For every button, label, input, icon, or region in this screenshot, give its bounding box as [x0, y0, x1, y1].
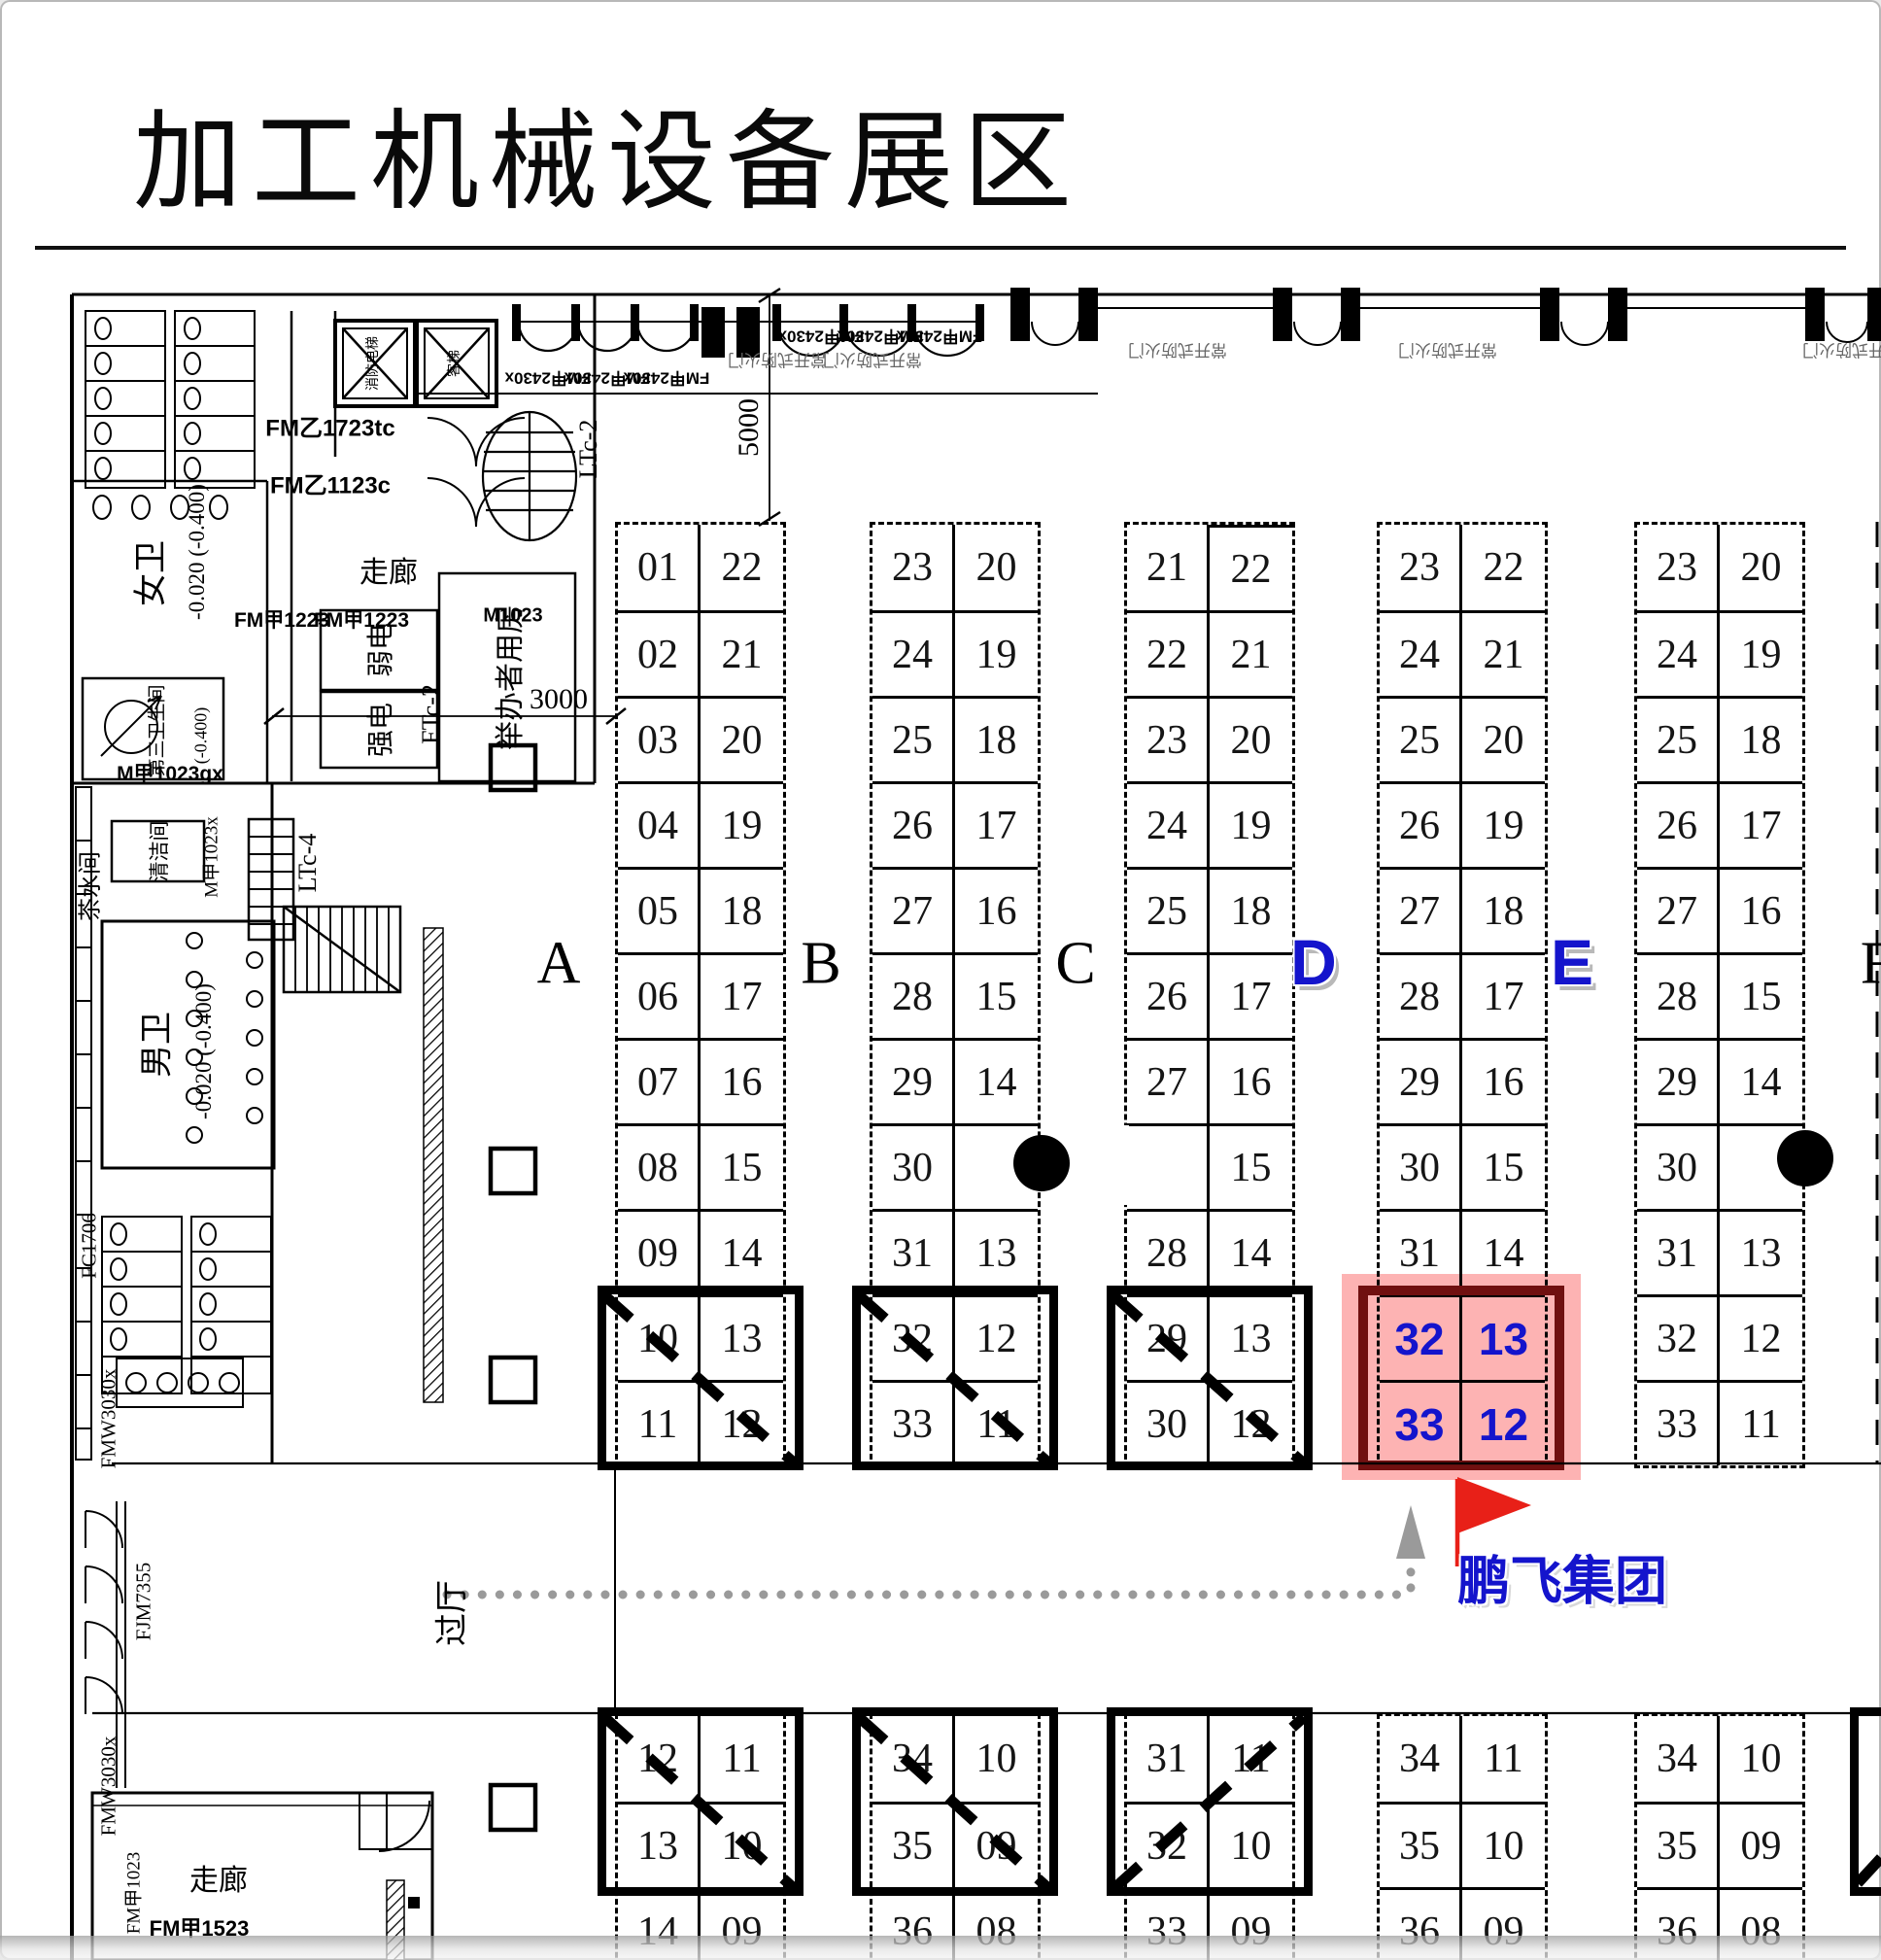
room-label-tea: 茶水间 [71, 851, 105, 921]
booth-cell[interactable]: 17 [1462, 952, 1545, 1038]
door-tag-fm1723: FM乙1723tc [265, 409, 394, 443]
booth-cell[interactable]: 23 [1127, 696, 1210, 781]
booth-cell[interactable] [955, 1123, 1038, 1209]
booth-cell[interactable]: 16 [1462, 1038, 1545, 1123]
door-tag-fm1123: FM乙1123c [270, 466, 391, 500]
booth-cell[interactable]: 19 [701, 781, 783, 867]
room-label-women-wc: 女卫 [124, 540, 172, 606]
booth-cell[interactable]: 21 [1210, 610, 1292, 696]
booth-cell[interactable]: 15 [1462, 1123, 1545, 1209]
booth-cell[interactable]: 29 [1637, 1038, 1720, 1123]
floorplan-page: 加工机械设备展区 0122 0221 0320 0419 0518 0617 0… [0, 0, 1881, 1960]
booth-cell[interactable]: 30 [1637, 1123, 1720, 1209]
open-floor [1127, 1123, 1210, 1209]
fire-door-label: 常开式防火门 [1128, 340, 1227, 364]
booth-cell[interactable]: 02 [618, 610, 701, 696]
booth-cell[interactable]: 23 [872, 525, 955, 610]
booth-cell[interactable]: 22 [701, 525, 783, 610]
reserved-box-b2 [852, 1707, 1058, 1896]
booth-cell[interactable]: 25 [1127, 867, 1210, 952]
tag-fc1706: FC1706 [78, 1213, 102, 1279]
fire-door-label: 常开式防火门 [1802, 340, 1881, 364]
booth-cell[interactable]: 14 [955, 1038, 1038, 1123]
booth-cell[interactable]: 30 [1380, 1123, 1462, 1209]
booth-cell[interactable]: 22 [1127, 610, 1210, 696]
booth-cell[interactable]: 15 [1210, 1123, 1292, 1209]
zone-label-b: B [801, 930, 840, 999]
booth-cell[interactable]: 17 [701, 952, 783, 1038]
booth-cell[interactable]: 06 [618, 952, 701, 1038]
booth-cell[interactable]: 18 [1462, 867, 1545, 952]
booth-cell[interactable]: 35 [1380, 1802, 1462, 1887]
booth-cell[interactable]: 10 [1720, 1716, 1802, 1802]
booth-cell[interactable]: 34 [1637, 1716, 1720, 1802]
booth-cell[interactable]: 11 [1462, 1716, 1545, 1802]
booth-cell[interactable]: 26 [1380, 781, 1462, 867]
company-label[interactable]: 鹏飞集团 [1457, 1538, 1667, 1615]
booth-cell[interactable]: 15 [701, 1123, 783, 1209]
booth-cell[interactable]: 16 [1210, 1038, 1292, 1123]
booth-cell[interactable]: 15 [955, 952, 1038, 1038]
door-tag-m1023: M1023 [483, 605, 542, 628]
booth-cell[interactable]: 35 [1637, 1802, 1720, 1887]
zone-e-lower-grid: 3410 3509 3608 [1634, 1713, 1805, 1960]
booth-cell[interactable]: 23 [1380, 525, 1462, 610]
booth-cell[interactable]: 16 [701, 1038, 783, 1123]
highlighted-booth-frame[interactable] [1358, 1286, 1564, 1470]
reserved-box-c [1107, 1286, 1313, 1470]
booth-cell[interactable]: 01 [618, 525, 701, 610]
reserved-box-c2 [1107, 1707, 1313, 1896]
booth-cell[interactable]: 17 [955, 781, 1038, 867]
reserved-box-a [598, 1286, 804, 1470]
door-tag-m1023x: M甲1023x [197, 816, 223, 897]
stair-ltc4 [249, 819, 293, 940]
notch-patch [1122, 1125, 1129, 1205]
booth-cell[interactable]: 22 [1210, 525, 1292, 610]
booth-cell[interactable]: 15 [1720, 952, 1802, 1038]
booth-cell[interactable]: 28 [1127, 1209, 1210, 1294]
booth-cell[interactable]: 30 [872, 1123, 955, 1209]
booth-cell[interactable]: 18 [1720, 696, 1802, 781]
door-tag-fmw3030: FMW3030x [97, 1736, 121, 1837]
booth-cell[interactable]: 09 [1720, 1802, 1802, 1887]
door-tag-fm1223: FM甲1223 [314, 604, 409, 634]
booth-cell[interactable]: 28 [1380, 952, 1462, 1038]
booth-cell[interactable]: 24 [872, 610, 955, 696]
booth-cell[interactable]: 25 [1380, 696, 1462, 781]
zone-label-f: F [1861, 930, 1881, 999]
booth-cell[interactable]: 17 [1210, 952, 1292, 1038]
booth-cell[interactable]: 26 [1637, 781, 1720, 867]
booth-cell[interactable]: 14 [1210, 1209, 1292, 1294]
booth-cell[interactable]: 04 [618, 781, 701, 867]
booth-cell[interactable]: 24 [1637, 610, 1720, 696]
level-note: -0.020 (-0.400) [185, 484, 210, 620]
booth-cell[interactable]: 03 [618, 696, 701, 781]
booth-cell[interactable]: 31 [1380, 1209, 1462, 1294]
booth-cell[interactable]: 07 [618, 1038, 701, 1123]
booth-cell[interactable]: 13 [1720, 1209, 1802, 1294]
booth-cell[interactable]: 32 [1637, 1294, 1720, 1380]
booth-cell[interactable] [1720, 1123, 1802, 1209]
elevator-shafts [335, 321, 496, 406]
booth-cell[interactable]: 23 [1637, 525, 1720, 610]
booth-cell[interactable]: 19 [1210, 781, 1292, 867]
booth-cell[interactable]: 28 [872, 952, 955, 1038]
zone-label-d: D [1290, 925, 1337, 999]
room-label-lobby: 过厅 [426, 1580, 473, 1646]
escalator-strip [424, 928, 443, 1402]
booth-cell[interactable]: 31 [1637, 1209, 1720, 1294]
booth-cell[interactable]: 21 [1462, 610, 1545, 696]
booth-cell[interactable]: 13 [955, 1209, 1038, 1294]
route-dotted-path [447, 1561, 1411, 1595]
double-door-arcs [427, 418, 525, 527]
booth-cell[interactable]: 20 [955, 525, 1038, 610]
room-label-corridor-mid: 走廊 [359, 548, 418, 591]
door-tag: FM甲2430x [897, 327, 983, 351]
elevator-label-passenger: 客梯 [444, 350, 463, 377]
booth-cell[interactable]: 09 [618, 1209, 701, 1294]
booth-cell[interactable]: 21 [1127, 525, 1210, 610]
booth-cell[interactable]: 19 [1720, 610, 1802, 696]
booth-cell[interactable]: 05 [618, 867, 701, 952]
booth-cell[interactable]: 20 [701, 696, 783, 781]
booth-cell[interactable]: 08 [618, 1123, 701, 1209]
fire-door-label: 常开式防火门 [1398, 340, 1497, 364]
fire-door-label: 常开式防火门 [728, 350, 827, 374]
booth-cell[interactable]: 18 [955, 696, 1038, 781]
booth-cell[interactable]: 26 [872, 781, 955, 867]
room-label-third-wc: 第三卫生间 [143, 684, 169, 776]
booth-cell[interactable]: 34 [1380, 1716, 1462, 1802]
booth-cell[interactable]: 31 [872, 1209, 955, 1294]
booth-cell[interactable]: 25 [1637, 696, 1720, 781]
level-note: -0.020 (-0.400) [191, 983, 217, 1119]
booth-cell[interactable]: 16 [955, 867, 1038, 952]
toilet-stalls-bottom [102, 1217, 271, 1407]
bottom-edge-shadow [0, 1936, 1881, 1960]
booth-cell[interactable]: 16 [1720, 867, 1802, 952]
zone-label-a: A [537, 930, 581, 999]
booth-cell[interactable]: 20 [1210, 696, 1292, 781]
zone-label-e: E [1551, 925, 1593, 999]
zone-e-grid: 2320 2419 2518 2617 2716 2815 2914 30 31… [1634, 522, 1805, 1468]
booth-cell[interactable]: 17 [1720, 781, 1802, 867]
booth-cell[interactable]: 12 [1720, 1294, 1802, 1380]
room-label-corridor-bottom: 走廊 [189, 1856, 248, 1899]
booth-cell[interactable]: 28 [1637, 952, 1720, 1038]
booth-cell[interactable]: 24 [1127, 781, 1210, 867]
title-divider [35, 246, 1846, 250]
room-label-men-wc: 男卫 [130, 1012, 178, 1078]
door-tag: FM甲2430x [624, 368, 710, 393]
reserved-box-b [852, 1286, 1058, 1470]
toilet-stalls-top [85, 311, 255, 488]
stair-tag-ftc2: FTc-2 [417, 684, 446, 744]
booth-cell[interactable]: 10 [1462, 1802, 1545, 1887]
booth-cell[interactable]: 24 [1380, 610, 1462, 696]
reserved-box-f2 [1850, 1707, 1881, 1896]
booth-cell[interactable]: 18 [701, 867, 783, 952]
booth-cell[interactable]: 27 [872, 867, 955, 952]
booth-cell[interactable]: 29 [872, 1038, 955, 1123]
reserved-box-a2 [598, 1707, 804, 1896]
booth-cell[interactable]: 26 [1127, 952, 1210, 1038]
dim-3000: 3000 [530, 683, 588, 716]
booth-cell[interactable]: 27 [1127, 1038, 1210, 1123]
booth-cell[interactable]: 20 [1462, 696, 1545, 781]
booth-cell[interactable]: 27 [1380, 867, 1462, 952]
level-note: (-0.400) [191, 707, 212, 764]
booth-cell[interactable]: 14 [701, 1209, 783, 1294]
booth-cell[interactable]: 19 [955, 610, 1038, 696]
dim-5000: 5000 [733, 398, 766, 457]
elevator-label-fire: 消防电梯 [362, 336, 382, 391]
route-arrow-icon [1396, 1505, 1425, 1559]
stair-ltc2 [483, 412, 576, 540]
stair-main [284, 907, 400, 992]
booth-cell[interactable]: 11 [1720, 1380, 1802, 1465]
room-label-strong-electric: 强电 [359, 703, 398, 757]
booth-cell[interactable]: 20 [1720, 525, 1802, 610]
page-title: 加工机械设备展区 [133, 74, 1081, 231]
door-tag-fjm7355: FJM7355 [132, 1563, 156, 1641]
door-tag-fm1023: FM甲1023 [120, 1852, 146, 1934]
zone-d-lower-grid: 3411 3510 3609 [1377, 1713, 1548, 1960]
booth-cell[interactable]: 18 [1210, 867, 1292, 952]
room-label-cleaning: 清洁间 [144, 821, 173, 882]
structural-columns [491, 745, 535, 1830]
booth-cell[interactable]: 22 [1462, 525, 1545, 610]
stair-tag-ltc2: LTc-2 [574, 420, 603, 479]
booth-cell[interactable]: 19 [1462, 781, 1545, 867]
stair-tag-ltc4: LTc-4 [293, 834, 323, 893]
booth-cell[interactable]: 14 [1720, 1038, 1802, 1123]
booth-cell[interactable]: 33 [1637, 1380, 1720, 1465]
booth-cell[interactable]: 14 [1462, 1209, 1545, 1294]
booth-cell[interactable]: 21 [701, 610, 783, 696]
zone-label-c: C [1055, 930, 1095, 999]
booth-cell[interactable]: 25 [872, 696, 955, 781]
men-wc-room [102, 921, 274, 1168]
fire-door-label: 常开式防火门 [823, 350, 922, 374]
booth-cell[interactable]: 27 [1637, 867, 1720, 952]
door-tag-fmw3030: FMW3030x [97, 1369, 121, 1469]
booth-cell[interactable]: 29 [1380, 1038, 1462, 1123]
